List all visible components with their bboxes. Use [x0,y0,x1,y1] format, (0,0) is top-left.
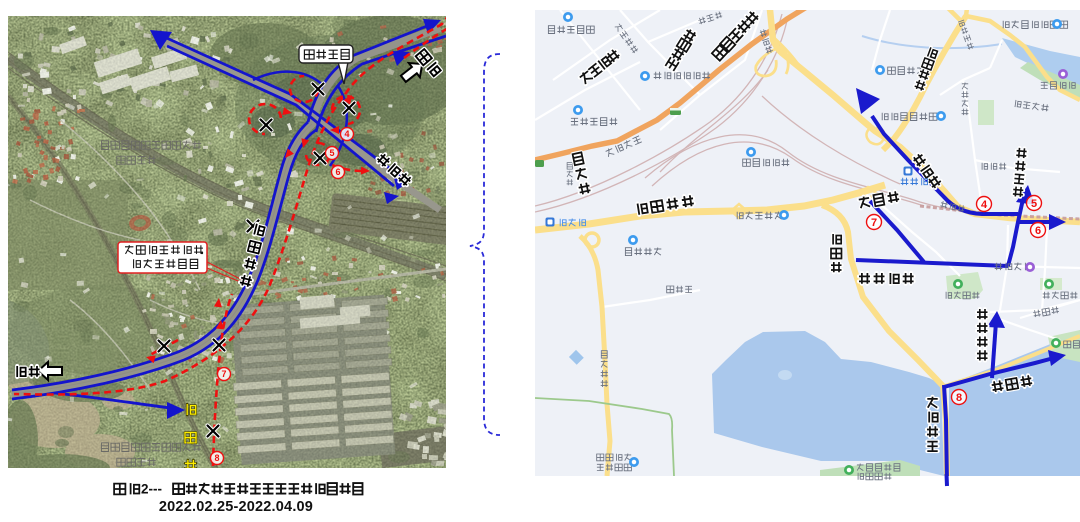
svg-text:8: 8 [956,392,962,404]
svg-text:8: 8 [214,453,219,463]
svg-text:7: 7 [871,217,877,229]
svg-text:2022.02.25-2022.04.09: 2022.02.25-2022.04.09 [159,499,313,515]
svg-text:6: 6 [335,167,340,177]
svg-text:7: 7 [221,369,226,379]
svg-text:6: 6 [1035,225,1041,237]
svg-text:5: 5 [329,148,334,158]
svg-text:2---: 2--- [141,482,162,497]
svg-text:4: 4 [344,129,349,139]
svg-text:5: 5 [1031,198,1037,210]
svg-text:4: 4 [981,199,988,211]
